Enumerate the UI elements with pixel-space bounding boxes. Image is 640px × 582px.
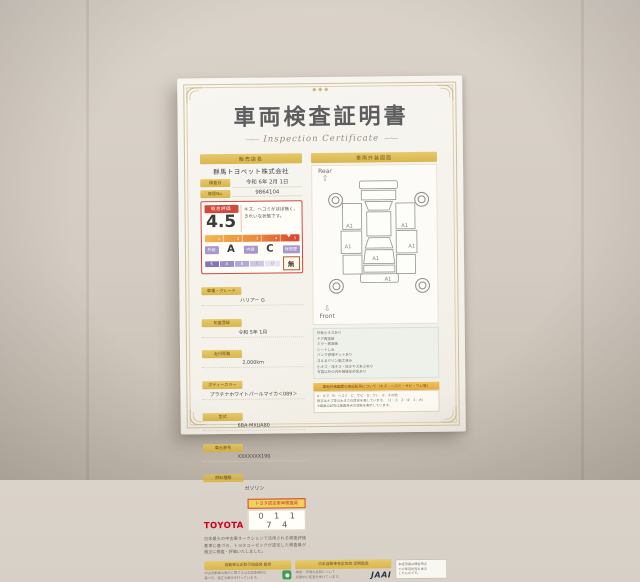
spec-label: 燃料種類 xyxy=(203,474,243,482)
fair-trade-block: 自動車公正取引協議会 監修 中古自動車の表示に関する公正競争規約に 基づき、適正… xyxy=(204,560,292,581)
spec-value: 6BA-MXUA80 xyxy=(203,422,305,431)
condition-notes-list: 外板小キズあり ドア再塗装 ミラー再塗装 シートしみ パンク修理キットあり きえ… xyxy=(313,326,440,379)
spec-row: 走行距離 2,000km xyxy=(202,339,304,368)
damage-marker: A1 xyxy=(408,243,415,249)
exterior-label: 外装 xyxy=(204,246,218,254)
legend-line: ※図面の記号は検査時点の状態を表示しています。 xyxy=(317,403,436,409)
spec-row: 燃料種類 ガソリン xyxy=(203,464,305,494)
damage-marker: A1 xyxy=(385,276,392,282)
inspection-date-value: 令和 6年 2月 1日 xyxy=(232,177,302,187)
spec-value: ガソリン xyxy=(203,484,305,494)
spec-label: 初度登録 xyxy=(202,318,242,326)
certificate-subtitle: Inspection Certificate xyxy=(263,133,379,144)
damage-marker: A1 xyxy=(345,244,352,250)
rating-scale-bar: S A B C D xyxy=(205,260,281,267)
certificate-paper: 車両検査証明書 —·— Inspection Certificate —·— 販… xyxy=(177,76,466,435)
score-gauge: 1 2 3 4 5 xyxy=(204,234,299,242)
subtitle-ornament: —·— xyxy=(245,136,258,144)
inspection-date-label: 検査日 xyxy=(200,179,230,187)
wall-seam-left xyxy=(86,0,89,480)
certified-inspector-badge: トヨタ認定車両検査員 xyxy=(247,498,305,509)
fair-trade-seal-icon xyxy=(283,571,292,580)
spec-row: 車種・グレード ハリアー G xyxy=(201,276,303,306)
diagram-header: 車両外装図面 xyxy=(311,152,437,163)
spec-label: 型式 xyxy=(203,413,243,421)
jaai-logo: JAAI xyxy=(371,570,391,579)
inspector-number: 0 1 1 7 4 xyxy=(248,509,306,531)
spec-value: 令和 5年 1月 xyxy=(202,328,304,338)
damage-marker: A1 xyxy=(346,223,353,229)
overall-evaluation-box: 総合評価 4.5 キズ、ヘコミがほぼ無く、 きれいな状態です。 1 2 3 4 xyxy=(200,200,303,274)
interior-rating: C xyxy=(259,244,280,254)
exterior-rating: A xyxy=(220,244,241,254)
spec-label: 車台番号 xyxy=(203,443,243,451)
control-no-label: 管理No. xyxy=(200,190,230,198)
repair-history-label: 修復歴 xyxy=(282,245,299,253)
wall-seam-right xyxy=(581,0,584,480)
evaluation-comment: キズ、ヘコミがほぼ無く、 きれいな状態です。 xyxy=(241,204,299,232)
control-no-value: 9864104 xyxy=(232,189,302,197)
spec-row: 型式 6BA-MXUA80 xyxy=(203,402,305,431)
damage-marker: A1 xyxy=(401,223,408,229)
jaai-header: 日本自動車査定協会 定期監査 xyxy=(296,559,392,569)
spec-label: 走行距離 xyxy=(202,350,242,358)
interior-label: 内装 xyxy=(243,245,257,253)
spec-value: ハリアー G xyxy=(201,296,303,306)
gauge-marker-icon xyxy=(287,234,291,237)
jaai-block: 日本自動車査定協会 定期監査 検査・評価の品質について 定期的に監査を受けていま… xyxy=(296,559,392,580)
car-diagram: A1 A1 A1 A1 A1 A1 xyxy=(326,176,431,313)
notice-block: 本証明書は検査時点 での車両状態を表示 したものです。 xyxy=(395,558,447,579)
damage-marker: A1 xyxy=(372,256,379,262)
spec-value: 2,000km xyxy=(202,360,304,369)
car-diagram-panel: Rear ⇧ ⇩ Front xyxy=(311,163,439,324)
certificate-title: 車両検査証明書 xyxy=(199,98,442,133)
spec-value: XXXXXXX190 xyxy=(203,453,305,462)
inspection-statement: 日本最大の中古車オークションで活用される検査評価基準に基づき、トヨタユーゼックが… xyxy=(204,535,306,556)
spec-label: 車種・グレード xyxy=(201,287,241,295)
fair-trade-header: 自動車公正取引協議会 監修 xyxy=(204,560,291,570)
dealer-name: 群馬トヨペット株式会社 xyxy=(200,163,302,177)
spec-value: プラチナホワイトパールマイカ＜089＞ xyxy=(202,390,304,400)
repair-history-value: 無 xyxy=(283,256,300,270)
spec-row: ボディーカラー プラチナホワイトパールマイカ＜089＞ xyxy=(202,370,304,400)
spec-row: 初度登録 令和 5年 1月 xyxy=(202,308,304,338)
overall-score: 4.5 xyxy=(204,212,238,232)
diagram-legend: 車両外装図面の表記記号について（キズ・ヘコミ・サビ・ワレ等） A：キズ B：ヘコ… xyxy=(313,382,439,413)
toyota-logo: TOYOTA xyxy=(204,521,244,531)
spec-label: ボディーカラー xyxy=(202,381,242,389)
subtitle-ornament: —·— xyxy=(384,134,397,142)
note-item: 写真以外の内外装経年劣化あり xyxy=(317,369,435,376)
spec-row: 車台番号 XXXXXXX190 xyxy=(203,433,305,462)
